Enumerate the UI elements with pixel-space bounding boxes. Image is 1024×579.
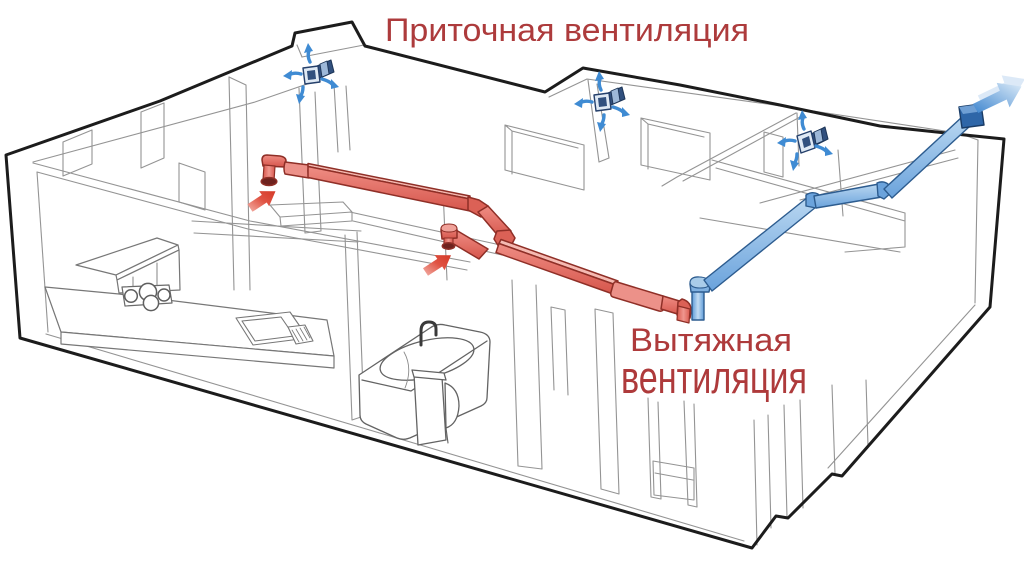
svg-text:Приточная вентиляция: Приточная вентиляция <box>385 12 749 48</box>
svg-text:вентиляция: вентиляция <box>621 352 807 403</box>
